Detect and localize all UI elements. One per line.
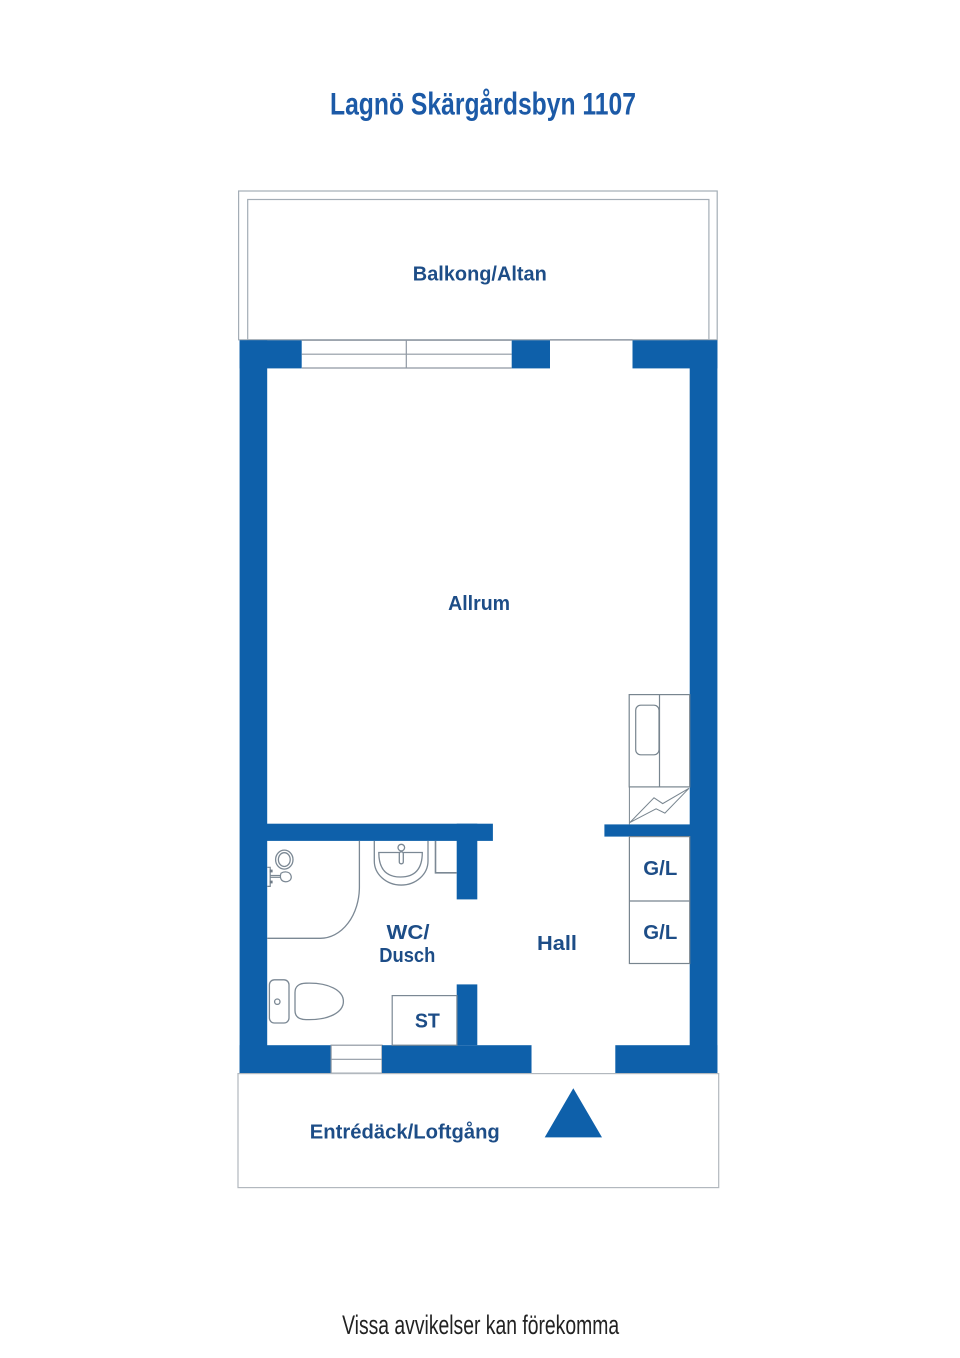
svg-text:G/L: G/L bbox=[643, 858, 677, 880]
svg-text:WC/: WC/ bbox=[387, 922, 430, 944]
svg-text:Vissa avvikelser kan förekomma: Vissa avvikelser kan förekomma bbox=[342, 1310, 620, 1340]
svg-text:Dusch: Dusch bbox=[379, 945, 435, 967]
svg-text:Entrédäck/Loftgång: Entrédäck/Loftgång bbox=[310, 1121, 500, 1144]
svg-text:Lagnö Skärgårdsbyn 1107: Lagnö Skärgårdsbyn 1107 bbox=[330, 85, 636, 121]
svg-text:Balkong/Altan: Balkong/Altan bbox=[413, 263, 547, 285]
svg-text:Hall: Hall bbox=[537, 933, 577, 955]
svg-text:Allrum: Allrum bbox=[448, 593, 510, 615]
svg-text:G/L: G/L bbox=[643, 922, 677, 944]
svg-text:ST: ST bbox=[415, 1011, 440, 1033]
